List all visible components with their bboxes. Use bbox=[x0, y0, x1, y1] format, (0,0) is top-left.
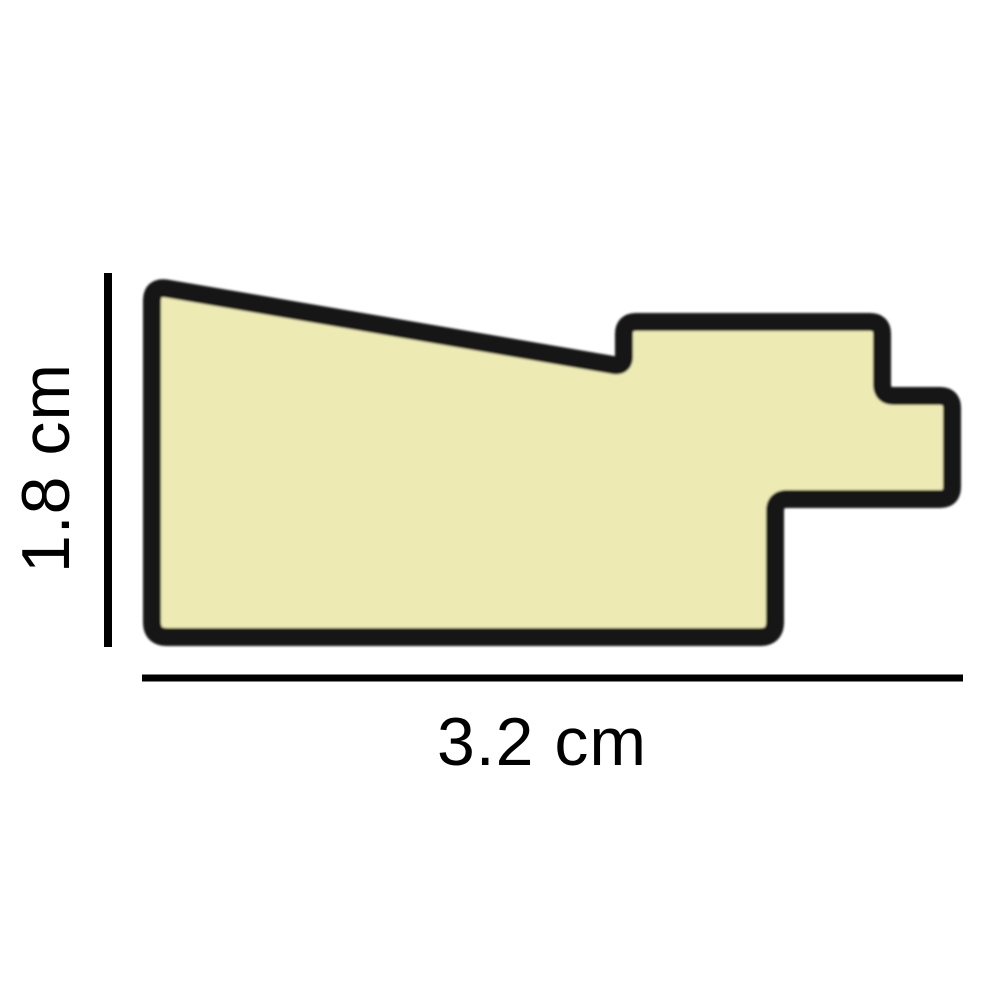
width-dimension-label: 3.2 cm bbox=[437, 703, 647, 781]
profile-diagram-svg bbox=[0, 0, 1000, 1000]
diagram-canvas: 1.8 cm 3.2 cm bbox=[0, 0, 1000, 1000]
moulding-profile-path bbox=[152, 288, 952, 637]
height-dimension-label: 1.8 cm bbox=[7, 363, 85, 573]
